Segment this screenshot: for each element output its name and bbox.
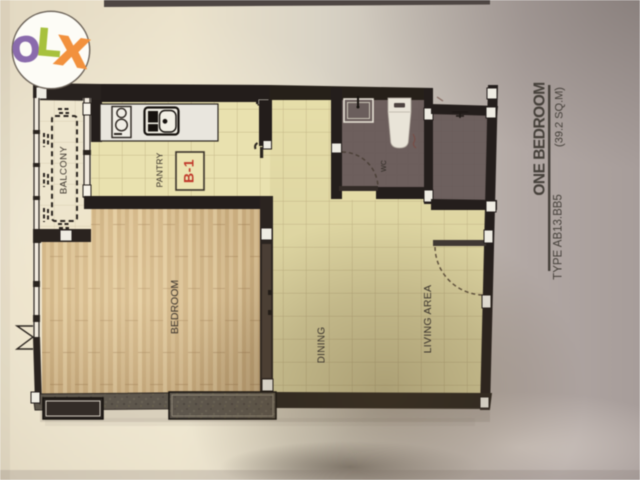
svg-text:DINING: DINING [317,327,328,364]
svg-text:BALCONY: BALCONY [59,146,70,194]
svg-text:PANTRY: PANTRY [154,152,164,187]
svg-text:B-1: B-1 [181,159,197,183]
svg-text:WC: WC [381,160,388,172]
svg-text:BEDROOM: BEDROOM [169,280,181,334]
svg-text:ONE BEDROOM: ONE BEDROOM [532,82,549,195]
svg-text:LIVING AREA: LIVING AREA [422,285,434,354]
svg-text:TYPE AB13.BB5: TYPE AB13.BB5 [553,194,565,280]
svg-text:(39.2 SQ.M): (39.2 SQ.M) [553,87,565,147]
